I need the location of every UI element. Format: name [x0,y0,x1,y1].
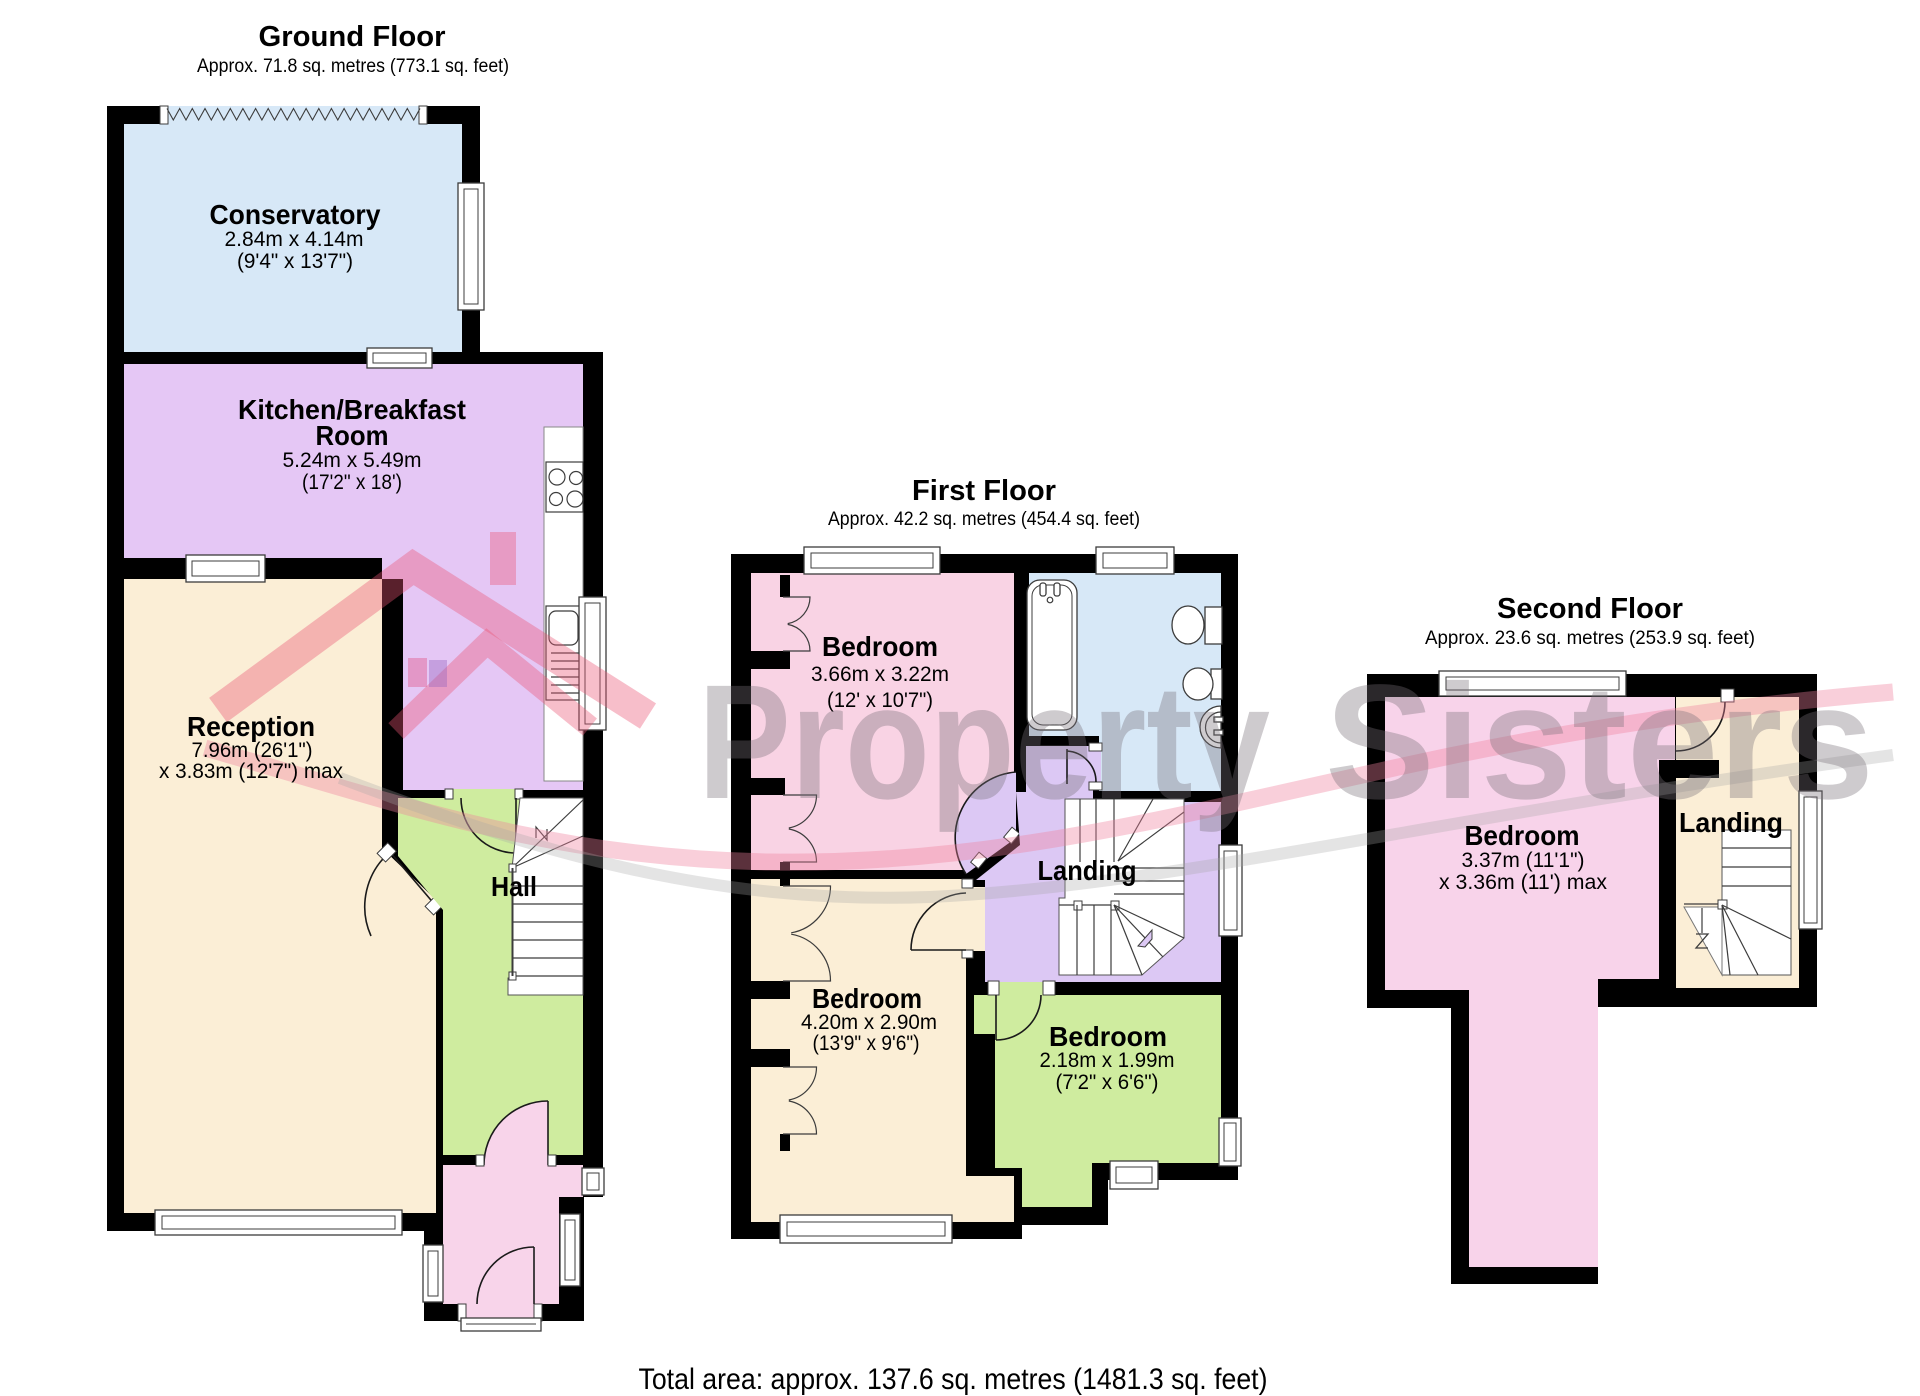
svg-text:Approx. 23.6 sq. metres (253.9: Approx. 23.6 sq. metres (253.9 sq. feet) [1425,628,1755,649]
svg-text:Total area: approx. 137.6 sq.: Total area: approx. 137.6 sq. metres (14… [639,1363,1268,1396]
svg-text:2.18m x 1.99m: 2.18m x 1.99m [1040,1048,1175,1072]
svg-text:x 3.83m (12'7") max: x 3.83m (12'7") max [159,759,343,783]
svg-text:Second Floor: Second Floor [1497,593,1683,625]
svg-text:Property: Property [698,650,1270,833]
svg-text:2.84m x 4.14m: 2.84m x 4.14m [225,227,364,251]
svg-text:(12' x 10'7"): (12' x 10'7") [827,688,933,712]
svg-text:Bedroom: Bedroom [822,631,938,662]
svg-text:Approx. 42.2 sq. metres (454.4: Approx. 42.2 sq. metres (454.4 sq. feet) [828,509,1140,530]
svg-text:3.37m (11'1"): 3.37m (11'1") [1462,848,1585,872]
svg-text:Room: Room [316,420,389,451]
svg-text:Approx. 71.8 sq. metres (773.1: Approx. 71.8 sq. metres (773.1 sq. feet) [197,56,509,77]
svg-text:5.24m x 5.49m: 5.24m x 5.49m [283,448,422,472]
svg-text:Ground Floor: Ground Floor [259,21,446,53]
svg-text:3.66m x 3.22m: 3.66m x 3.22m [811,662,949,686]
svg-text:First Floor: First Floor [912,475,1056,507]
svg-text:Landing: Landing [1038,855,1137,886]
svg-text:(17'2" x 18'): (17'2" x 18') [302,470,402,494]
svg-text:(7'2" x 6'6"): (7'2" x 6'6") [1056,1070,1159,1094]
svg-text:Landing: Landing [1679,807,1783,838]
svg-text:Conservatory: Conservatory [210,199,381,230]
svg-text:Hall: Hall [491,871,537,902]
svg-text:Bedroom: Bedroom [1465,820,1580,851]
svg-text:Sisters: Sisters [1325,650,1874,833]
svg-text:(9'4" x 13'7"): (9'4" x 13'7") [237,249,353,273]
svg-text:x 3.36m (11') max: x 3.36m (11') max [1439,870,1607,894]
svg-text:(13'9" x 9'6"): (13'9" x 9'6") [813,1031,920,1055]
